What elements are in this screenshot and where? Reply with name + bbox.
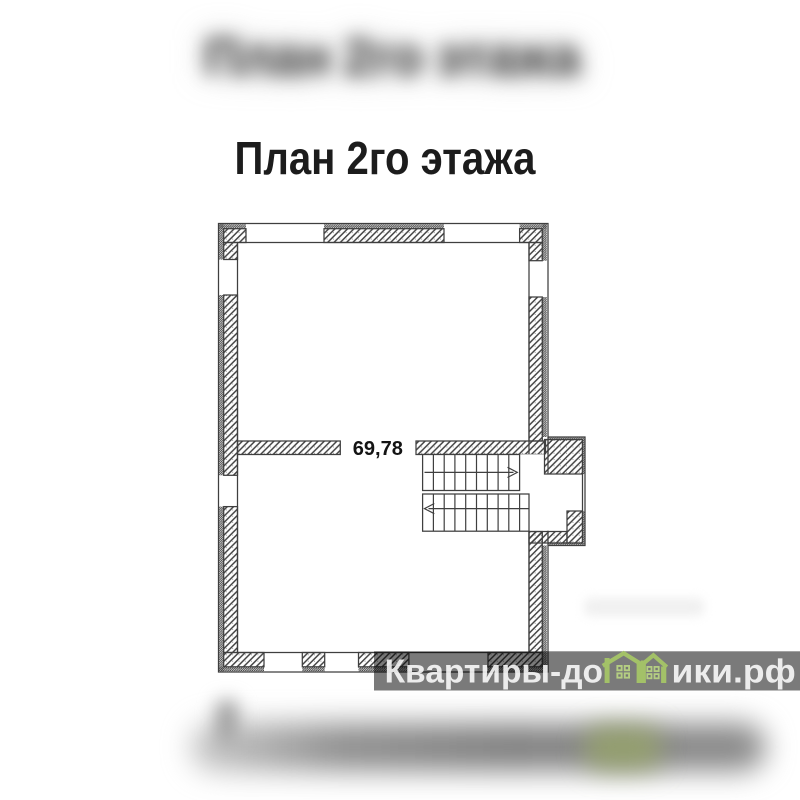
svg-text:Квартиры-до: Квартиры-до	[385, 653, 603, 690]
svg-text:69,78: 69,78	[353, 437, 403, 460]
svg-text:ики.рф: ики.рф	[672, 653, 796, 690]
svg-text:План 2го этажа: План 2го этажа	[235, 132, 536, 184]
